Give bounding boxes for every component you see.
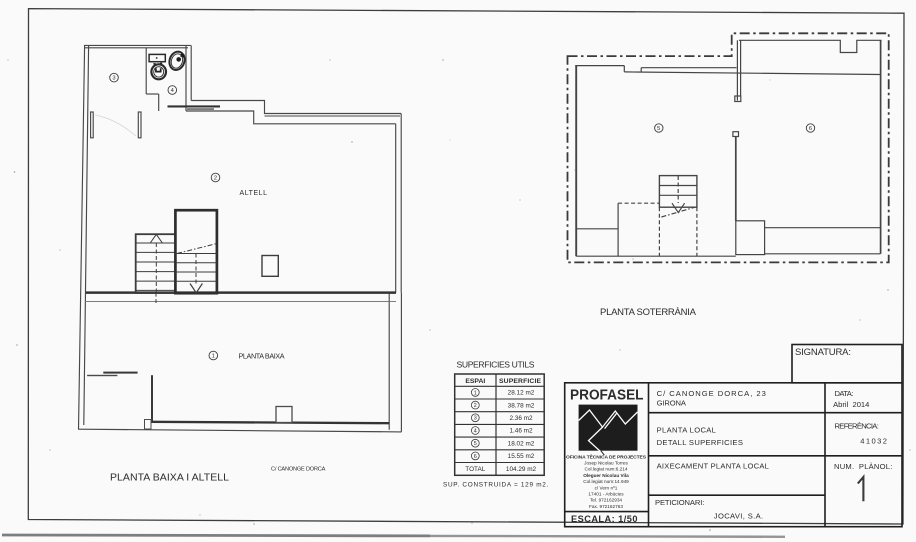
svg-text:1: 1 — [212, 354, 215, 360]
svg-text:Oleguer Nicolau Vila: Oleguer Nicolau Vila — [583, 473, 629, 478]
svg-text:17401 - Arbúcies: 17401 - Arbúcies — [588, 492, 624, 497]
svg-text:5: 5 — [657, 126, 660, 132]
svg-text:38.78 m2: 38.78 m2 — [508, 402, 535, 409]
svg-text:PROFASEL: PROFASEL — [570, 388, 644, 404]
svg-text:Josep Nicolau Torres: Josep Nicolau Torres — [584, 461, 628, 466]
svg-text:3: 3 — [474, 416, 477, 422]
svg-text:2: 2 — [214, 176, 217, 182]
svg-text:SUP. CONSTRUIDA = 129 m2.: SUP. CONSTRUIDA = 129 m2. — [443, 482, 549, 489]
svg-text:SUPERFICIES UTILS: SUPERFICIES UTILS — [457, 360, 536, 370]
svg-text:Tel. 972162934: Tel. 972162934 — [590, 498, 622, 503]
svg-text:ALTELL: ALTELL — [240, 190, 269, 197]
svg-text:1: 1 — [474, 390, 477, 396]
svg-text:4: 4 — [474, 428, 477, 434]
svg-text:41032: 41032 — [860, 437, 888, 446]
svg-text:NUM. PLÀNOL:: NUM. PLÀNOL: — [834, 462, 893, 471]
svg-text:AIXECAMENT PLANTA LOCAL: AIXECAMENT PLANTA LOCAL — [657, 461, 770, 470]
svg-text:28.12 m2: 28.12 m2 — [508, 390, 535, 397]
svg-text:DATA:: DATA: — [835, 389, 855, 398]
svg-text:Col.legiat num:6.214: Col.legiat num:6.214 — [585, 467, 628, 472]
svg-text:2.36 m2: 2.36 m2 — [509, 415, 533, 422]
svg-text:JOCAVI, S.A.: JOCAVI, S.A. — [714, 512, 764, 521]
svg-text:REFERÈNCIA:: REFERÈNCIA: — [835, 422, 880, 431]
svg-text:1.46 m2: 1.46 m2 — [509, 428, 533, 435]
svg-text:15.55 m2: 15.55 m2 — [508, 453, 535, 460]
svg-text:SUPERFICIE: SUPERFICIE — [499, 378, 541, 385]
svg-text:PLANTA LOCAL: PLANTA LOCAL — [657, 426, 717, 435]
svg-text:6: 6 — [474, 454, 477, 460]
svg-text:C/ CANONGE DORCA, 23: C/ CANONGE DORCA, 23 — [657, 389, 767, 398]
svg-text:GIRONA: GIRONA — [657, 398, 687, 407]
svg-text:PLANTA BAIXA: PLANTA BAIXA — [239, 352, 287, 361]
svg-text:18.02 m2: 18.02 m2 — [508, 440, 535, 447]
svg-text:Col.legiat num:14.949: Col.legiat num:14.949 — [583, 479, 629, 484]
svg-text:TOTAL: TOTAL — [465, 466, 485, 473]
svg-text:ESPAI: ESPAI — [465, 378, 485, 385]
svg-text:DETALL SUPERFICIES: DETALL SUPERFICIES — [657, 438, 744, 447]
svg-text:PLANTA SOTERRÀNIA: PLANTA SOTERRÀNIA — [600, 307, 698, 318]
svg-text:C/ CANONGE DORCA: C/ CANONGE DORCA — [271, 467, 326, 473]
svg-text:c/ Vern nº1: c/ Vern nº1 — [595, 485, 618, 490]
svg-text:2: 2 — [474, 403, 477, 409]
svg-text:ESCALA: 1/50: ESCALA: 1/50 — [571, 514, 638, 524]
svg-text:Fax. 972162763: Fax. 972162763 — [589, 504, 623, 509]
svg-text:SIGNATURA:: SIGNATURA: — [795, 347, 851, 358]
svg-text:6: 6 — [809, 126, 812, 132]
svg-text:PLANTA BAIXA I ALTELL: PLANTA BAIXA I ALTELL — [110, 472, 231, 484]
svg-text:Abril 2014: Abril 2014 — [833, 400, 870, 409]
svg-text:PETICIONARI:: PETICIONARI: — [655, 498, 705, 507]
svg-text:3: 3 — [112, 76, 115, 82]
svg-text:5: 5 — [474, 441, 477, 447]
svg-text:104.29 m2: 104.29 m2 — [506, 466, 537, 473]
